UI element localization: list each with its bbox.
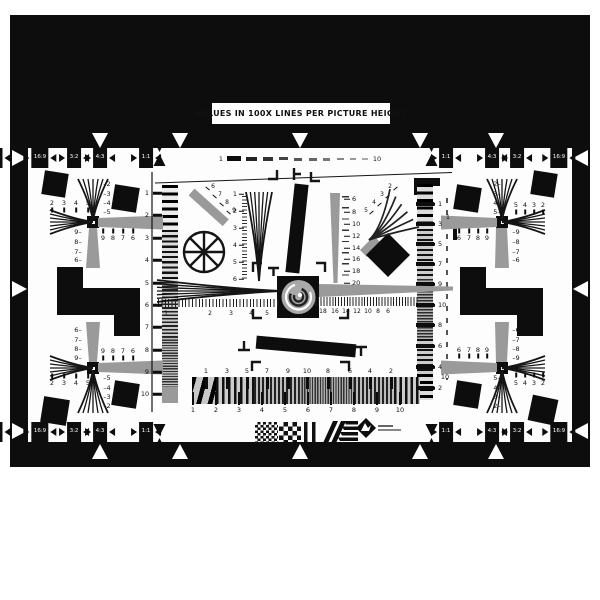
wedge-label: 9– — [74, 229, 81, 236]
wedge-label: 9 — [485, 347, 489, 354]
wedge-label: 2 — [50, 200, 54, 207]
scale-label: 3 — [380, 192, 384, 198]
diagonal-gray-bar — [189, 189, 229, 226]
wedge-label: –3 — [103, 394, 110, 401]
wedge-label: 8 — [111, 235, 115, 242]
tick-mark — [515, 373, 517, 378]
scale-label: 14 — [342, 309, 350, 315]
wedge-label: 3 — [532, 380, 536, 387]
tick-mark — [122, 356, 124, 361]
scale-label: 9 — [145, 369, 149, 376]
wedge-label: 8– — [74, 346, 81, 353]
scale-label: 9 — [232, 208, 236, 214]
scale-label: 2 — [208, 311, 212, 317]
scale-label: 5 — [265, 311, 269, 317]
scale-label: 1 — [164, 311, 168, 317]
wedge-label: 7– — [74, 337, 81, 344]
scale-label: 4 — [368, 368, 372, 375]
wedge-label: –4 — [103, 385, 110, 392]
scale-label: 2 — [389, 368, 393, 375]
scale-label: 12 — [352, 233, 360, 240]
wedge-label: 4– — [493, 200, 500, 207]
wedge-label: 5 — [86, 380, 90, 387]
wedge-label: 6 — [457, 235, 461, 242]
wedge-label: –9 — [512, 355, 519, 362]
wedge-label: 4– — [493, 385, 500, 392]
wedge-label: 6– — [74, 327, 81, 334]
wedge-label: –6 — [512, 327, 519, 334]
scale-label: 1 — [438, 201, 442, 208]
wedge-label: 5 — [514, 202, 518, 209]
wedge-label: 7 — [467, 347, 471, 354]
scale-label: 6 — [233, 276, 237, 283]
tick-mark — [524, 373, 526, 378]
scale-label: 9 — [286, 368, 290, 375]
scale-label: 18 — [319, 309, 327, 315]
scale-label: 3 — [438, 221, 442, 228]
scale-label: 6 — [348, 368, 352, 375]
wedge-label: 9 — [485, 235, 489, 242]
wedge-label: 6 — [131, 348, 135, 355]
scale-label: 2 — [214, 407, 218, 414]
wedge-label: 7– — [74, 249, 81, 256]
scale-label: 10 — [441, 374, 449, 381]
wedge-label: –5 — [103, 209, 110, 216]
wedge-label: –8 — [512, 346, 519, 353]
tick-mark — [87, 374, 89, 379]
wedge-label: 4 — [74, 200, 78, 207]
tick-mark — [87, 208, 89, 213]
wedge-label: 6 — [457, 347, 461, 354]
scale-label: 10 — [364, 309, 372, 315]
wedge-label: 9 — [101, 235, 105, 242]
scale-label: 6 — [352, 196, 356, 203]
scale-label: 5 — [283, 407, 287, 414]
scale-label: 3 — [229, 311, 233, 317]
wedge-label: 3 — [62, 380, 66, 387]
curved-line-fan — [369, 189, 419, 240]
tick-mark — [486, 354, 488, 359]
wedge-label: 7 — [467, 235, 471, 242]
scale-label: 6 — [211, 184, 215, 190]
tick-mark — [112, 229, 114, 234]
wedge-label: 8– — [74, 239, 81, 246]
wedge-label: –3 — [103, 191, 110, 198]
scale-label: 6 — [306, 407, 310, 414]
wedge-label: 2 — [541, 380, 545, 387]
scale-label: 8 — [225, 200, 229, 206]
wedge-label: 5 — [86, 200, 90, 207]
scale-label: 1 — [191, 407, 195, 414]
scale-label: 3 — [145, 235, 149, 242]
scale-label: 6 — [386, 309, 390, 315]
tick-mark — [468, 354, 470, 359]
tick-mark — [112, 356, 114, 361]
scale-label: 7 — [265, 368, 269, 375]
scale-label: 4 — [249, 311, 253, 317]
wedge-label: 7 — [121, 235, 125, 242]
wedge-label: –7 — [512, 249, 519, 256]
scale-label: 5 — [233, 259, 237, 266]
wedge-label: –4 — [103, 200, 110, 207]
wedge-label: 4 — [74, 380, 78, 387]
scale-label: 8 — [326, 368, 330, 375]
wedge-label: 8 — [111, 348, 115, 355]
tick-mark — [51, 208, 53, 213]
wedge-label: –8 — [512, 239, 519, 246]
wedge-label: –2 — [103, 403, 110, 410]
wedge-label: 4 — [523, 380, 527, 387]
tick-mark — [468, 229, 470, 234]
scale-label: 12 — [353, 309, 361, 315]
wedge-label: 3 — [532, 202, 536, 209]
scale-label: 2 — [388, 184, 392, 190]
tick-mark — [477, 229, 479, 234]
wedge-label: 2 — [50, 380, 54, 387]
scale-label: 3 — [237, 407, 241, 414]
tick-mark — [542, 373, 544, 378]
manufacturer-logo-icon — [356, 418, 376, 438]
scale-label: 1 — [233, 191, 237, 198]
tick-mark — [63, 208, 65, 213]
scale-label: 1 — [446, 214, 450, 221]
scale-label: 5 — [364, 208, 368, 214]
wedge-label: 2 — [541, 202, 545, 209]
scale-label: 8 — [438, 322, 442, 329]
scale-label: 1 — [219, 156, 223, 163]
scale-label: 9 — [375, 407, 379, 414]
scale-label: 4 — [145, 257, 149, 264]
wedge-label: 5– — [493, 375, 500, 382]
tick-mark — [132, 229, 134, 234]
scale-label: 2 — [438, 385, 442, 392]
tick-mark — [458, 354, 460, 359]
wedge-label: 5– — [493, 209, 500, 216]
scale-label: 10 — [438, 302, 446, 309]
scale-label: 5 — [145, 280, 149, 287]
center-target-rings — [282, 280, 316, 314]
tick-mark — [122, 229, 124, 234]
wedge-label: 2– — [493, 403, 500, 410]
scale-label: 10 — [352, 221, 360, 228]
scale-label: 3 — [233, 225, 237, 232]
tick-mark — [533, 373, 535, 378]
scale-label: 8 — [376, 309, 380, 315]
scale-label: 7 — [438, 261, 442, 268]
tick-mark — [132, 356, 134, 361]
tick-mark — [51, 374, 53, 379]
scale-label: 1 — [145, 190, 149, 197]
scale-label: 10 — [396, 407, 404, 414]
wedge-label: 4 — [523, 202, 527, 209]
siemens-wheel — [184, 232, 224, 272]
scale-label: 8 — [352, 209, 356, 216]
wedge-label: 6 — [131, 235, 135, 242]
scale-label: 2 — [145, 212, 149, 219]
scale-label: 10 — [141, 391, 149, 398]
tick-mark — [524, 210, 526, 215]
scale-label: 18 — [352, 268, 360, 275]
vector-patterns — [0, 0, 600, 600]
scale-label: 7 — [329, 407, 333, 414]
wedge-label: 5 — [514, 380, 518, 387]
scale-label: 5 — [438, 241, 442, 248]
scale-label: 3 — [225, 368, 229, 375]
scale-label: 10 — [373, 156, 381, 163]
wedge-label: 8 — [476, 347, 480, 354]
wedge-label: –6 — [512, 257, 519, 264]
tick-mark — [102, 356, 104, 361]
scale-label: 7 — [145, 324, 149, 331]
scale-label: 4 — [372, 200, 376, 206]
wedge-label: 3– — [493, 191, 500, 198]
scale-label: 6 — [438, 343, 442, 350]
scale-label: 5 — [245, 368, 249, 375]
scale-label: 8 — [352, 407, 356, 414]
scale-label: 8 — [145, 347, 149, 354]
scale-label: 14 — [352, 245, 360, 252]
flag-pattern — [323, 421, 358, 443]
tick-mark — [486, 229, 488, 234]
tick-mark — [515, 210, 517, 215]
tick-mark — [63, 374, 65, 379]
wedge-label: –7 — [512, 337, 519, 344]
logo-microtext — [378, 425, 393, 427]
wedge-label: 7 — [121, 348, 125, 355]
wedge-label: 6– — [74, 257, 81, 264]
scale-label: 9 — [438, 281, 442, 288]
logo-microtext — [378, 429, 401, 431]
wedge-label: 2– — [493, 181, 500, 188]
tick-mark — [477, 354, 479, 359]
scale-label: 7 — [218, 192, 222, 198]
tick-mark — [75, 374, 77, 379]
wedge-label: 9 — [101, 348, 105, 355]
tick-mark — [102, 229, 104, 234]
tick-mark — [458, 229, 460, 234]
wedge-label: –5 — [103, 375, 110, 382]
scale-label: 10 — [303, 368, 311, 375]
tick-mark — [75, 208, 77, 213]
wedge-label: 8 — [476, 235, 480, 242]
scale-label: 1 — [204, 368, 208, 375]
wedge-label: 3 — [62, 200, 66, 207]
scale-label: 6 — [145, 302, 149, 309]
scale-label: 16 — [331, 309, 339, 315]
tick-mark — [533, 210, 535, 215]
scale-label: 4 — [438, 364, 442, 371]
scale-label: 4 — [233, 242, 237, 249]
wedge-label: –2 — [103, 181, 110, 188]
wedge-label: 3– — [493, 394, 500, 401]
scale-label: 4 — [260, 407, 264, 414]
scale-label: 20 — [352, 280, 360, 287]
wedge-label: 9– — [74, 355, 81, 362]
wedge-label: –9 — [512, 229, 519, 236]
scale-label: 16 — [352, 256, 360, 263]
iso-resolution-test-chart: VALUES IN 100X LINES PER PICTURE HEIGHT … — [0, 0, 600, 600]
tick-mark — [542, 210, 544, 215]
